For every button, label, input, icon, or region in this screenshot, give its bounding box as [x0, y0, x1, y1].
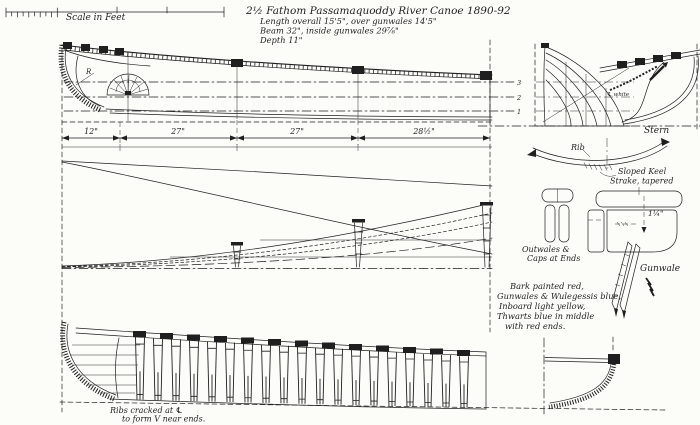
stern-pen-arrow — [650, 66, 664, 80]
gunwale-label: Gunwale — [640, 264, 680, 274]
title-block: 2½ Fathom Passamaquoddy River Canoe 1890… — [245, 5, 511, 45]
ribs-lashing-blocks — [133, 331, 470, 356]
body-plan — [535, 43, 634, 126]
thwart-mark — [115, 48, 124, 55]
thwart-mark — [81, 44, 90, 51]
outwale-bar — [545, 205, 555, 242]
bow-ladder-lines — [70, 345, 140, 393]
body-plan-stem — [544, 46, 545, 126]
ribs-headboard-line — [116, 338, 120, 398]
plan-hairlines — [170, 240, 492, 257]
paint-note-3: Inboard light yellow, — [498, 301, 586, 311]
inwale-plan-line — [62, 161, 492, 186]
title-line-4: Depth 11" — [259, 35, 303, 45]
profile-view: R 3 2 1 — [61, 42, 521, 122]
stern-thwart-mark — [653, 55, 663, 62]
bow-stem-serrated — [61, 45, 100, 110]
waterline-plan-b — [62, 222, 492, 267]
stern-gunwale-outer — [600, 50, 700, 68]
outwales-label-line-2: Caps at Ends — [527, 254, 580, 263]
rib-arrow-right — [661, 138, 670, 146]
rib-label-leader — [583, 150, 590, 157]
stern-thwart-mark — [671, 52, 681, 59]
waterline-plan-c — [62, 238, 492, 268]
thwart-mark — [99, 46, 108, 53]
stern-end-gunwale — [545, 358, 609, 363]
outwales-detail: Outwales & Caps at Ends — [522, 189, 580, 263]
waterline-label-1: 1 — [517, 108, 521, 116]
rib-end-tapered — [612, 242, 640, 319]
dim-seg-1: 12" — [84, 127, 98, 136]
title-line-3: Beam 32", inside gunwales 29⅞" — [259, 26, 399, 36]
dim-seg-4: 28½" — [412, 127, 435, 136]
waterline-label-2: 2 — [516, 94, 521, 102]
dim-seg-3: 27" — [289, 127, 304, 136]
gunwale-hidden-lines — [588, 220, 637, 224]
dimension-extension-lines — [120, 120, 358, 145]
paint-note-2: Gunwales & Wulegessis blue, — [497, 291, 621, 301]
stern-centerline-note: ℄ white — [607, 91, 630, 98]
body-plan-stem-cap — [541, 43, 549, 48]
gunwale-outwale-section — [588, 210, 604, 252]
gunwale-dim-arrow — [642, 227, 647, 233]
rib-arrow-left — [527, 149, 536, 157]
scale-bar: Scale in Feet — [6, 7, 224, 23]
stern-view: ℄ white Stern — [600, 44, 700, 136]
stern-thwart-mark — [617, 61, 627, 68]
keel-note-line-1: Sloped Keel — [618, 167, 667, 176]
outwale-bar — [559, 205, 569, 242]
stern-gunwale-inner — [600, 54, 700, 72]
ribs-plan-view: Ribs cracked at ℄ to form V near ends. — [63, 322, 486, 424]
bottom-line-outer — [106, 109, 492, 117]
stern-thwart-mark — [635, 58, 645, 65]
scale-bar-minor-ticks — [6, 8, 57, 17]
paint-note-4: Thwarts blue in middle — [497, 311, 594, 321]
ribs-caption-line-2: to form V near ends. — [122, 415, 205, 424]
body-plan-grid — [566, 62, 606, 126]
pen-flourish — [646, 278, 654, 296]
stern-end-cap — [608, 354, 620, 364]
title-line-2: Length overall 15'5", over gunwales 14'5… — [259, 16, 437, 26]
paint-note-5: with red ends. — [505, 321, 565, 331]
headboard-curve — [76, 56, 100, 106]
bow-stem-inner — [65, 47, 104, 107]
stern-stem-outer — [624, 56, 698, 124]
stern-end-stem-serrated — [549, 364, 614, 407]
keel-note-line-2: Strake, tapered — [610, 177, 673, 186]
half-breadth-plan — [62, 144, 493, 268]
dim-seg-2: 27" — [170, 127, 185, 136]
waterline-label-3: 3 — [517, 79, 521, 87]
scale-bar-label: Scale in Feet — [66, 13, 126, 23]
section-curve — [546, 69, 583, 126]
sheer-line-outer — [62, 45, 492, 75]
stern-end-detail — [545, 337, 620, 407]
canoe-plan-sheet: Scale in Feet 2½ Fathom Passamaquoddy Ri… — [0, 0, 700, 425]
dimension-line: 12" 27" 27" 28½" — [62, 120, 490, 145]
gunwale-dimension: 1¼" — [648, 209, 664, 218]
rib-band-lower — [531, 146, 667, 165]
stem-radius-leader — [76, 73, 94, 85]
stern-end-stem-inner — [550, 364, 611, 403]
gunwale-peg-hatch — [617, 222, 628, 226]
canoe-plans-drawing: Scale in Feet 2½ Fathom Passamaquoddy Ri… — [0, 0, 700, 425]
plan-station-ticks — [120, 144, 358, 151]
paint-notes: Bark painted red, Gunwales & Wulegessis … — [497, 281, 621, 331]
rib-label: Rib — [570, 143, 585, 152]
gunwale-main-section — [607, 210, 677, 252]
section-curve — [546, 80, 571, 126]
stern-label: Stern — [644, 126, 669, 136]
outwales-label-line-1: Outwales & — [522, 245, 570, 254]
keel-strake-hatching — [584, 163, 612, 171]
rib-detail: Rib Sloped Keel Strake, tapered — [527, 138, 673, 186]
paint-note-1: Bark painted red, — [509, 281, 584, 291]
section-curve — [546, 47, 624, 126]
